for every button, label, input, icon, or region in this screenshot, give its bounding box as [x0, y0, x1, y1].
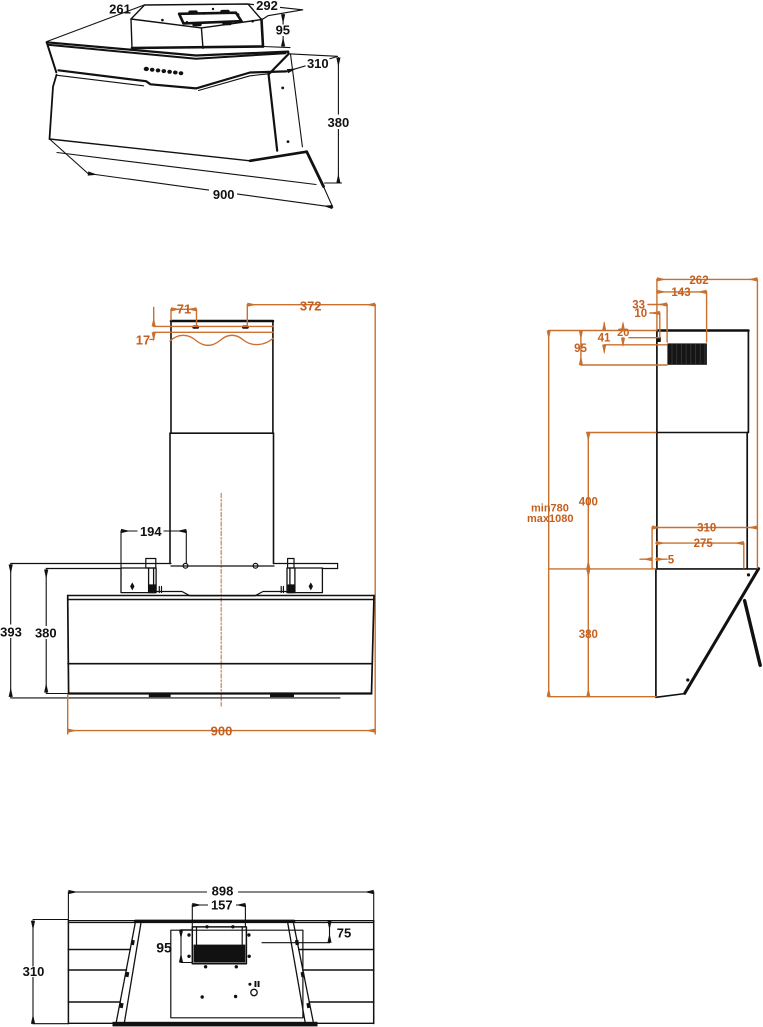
svg-text:71: 71	[177, 302, 191, 317]
svg-text:310: 310	[23, 964, 45, 979]
svg-text:380: 380	[35, 625, 57, 640]
svg-text:372: 372	[300, 299, 322, 314]
svg-text:194: 194	[140, 524, 162, 539]
svg-text:900: 900	[211, 724, 233, 739]
svg-text:275: 275	[694, 538, 714, 550]
svg-text:292: 292	[256, 0, 278, 13]
svg-text:400: 400	[579, 497, 598, 509]
svg-text:95: 95	[276, 22, 290, 37]
svg-text:max1080: max1080	[527, 513, 574, 525]
svg-text:898: 898	[212, 883, 234, 898]
svg-text:75: 75	[337, 926, 351, 941]
svg-text:157: 157	[211, 897, 233, 912]
svg-text:20: 20	[617, 327, 629, 339]
svg-text:262: 262	[689, 275, 708, 287]
svg-text:5: 5	[668, 554, 675, 566]
svg-text:17: 17	[136, 332, 150, 347]
svg-text:261: 261	[109, 2, 131, 17]
svg-text:900: 900	[213, 187, 235, 202]
svg-text:310: 310	[307, 56, 329, 71]
svg-text:310: 310	[697, 522, 716, 534]
svg-text:95: 95	[574, 343, 587, 355]
svg-text:393: 393	[0, 624, 22, 639]
svg-text:380: 380	[328, 115, 350, 130]
svg-text:95: 95	[156, 939, 172, 955]
svg-text:143: 143	[671, 287, 690, 299]
svg-text:41: 41	[598, 333, 611, 345]
svg-text:10: 10	[634, 308, 647, 320]
svg-text:380: 380	[579, 629, 598, 641]
